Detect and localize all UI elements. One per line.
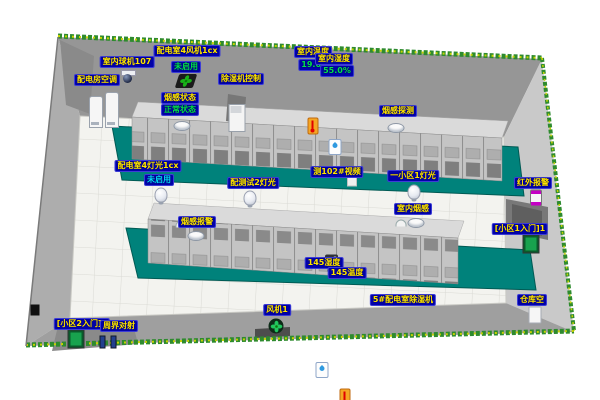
label-video102[interactable]: 测102#视频 xyxy=(310,166,363,178)
ac-unit-icon xyxy=(105,92,119,128)
thermometer-icon[interactable] xyxy=(340,389,351,400)
light-bulb-icon[interactable] xyxy=(155,188,168,203)
smoke-detector-icon[interactable] xyxy=(388,123,405,133)
smoke-sensor-ring-icon[interactable] xyxy=(408,218,425,228)
warehouse-box-icon[interactable] xyxy=(529,307,542,324)
perimeter-beam-icon[interactable] xyxy=(100,336,117,349)
thermometer-icon[interactable] xyxy=(308,118,319,135)
fan-blades-icon xyxy=(270,320,282,332)
ac-unit-icon xyxy=(89,96,103,128)
label-fan-status[interactable]: 未启用 xyxy=(171,61,201,73)
label-area1-light[interactable]: 一小区1灯光 xyxy=(387,170,439,182)
fan-blades-icon xyxy=(178,75,194,87)
label-temp145[interactable]: 145温度 xyxy=(328,267,367,279)
infrared-alarm-icon[interactable] xyxy=(530,190,542,207)
camera-dome xyxy=(123,74,132,83)
wall-opening xyxy=(31,305,40,316)
label-indoor-smoke[interactable]: 室内烟感 xyxy=(394,203,432,215)
label-indoor-humidity[interactable]: 室内湿度 xyxy=(315,53,353,65)
smoke-sensor-dome-icon[interactable] xyxy=(396,220,407,227)
label-dehumid5[interactable]: 5#配电室除湿机 xyxy=(370,294,436,306)
label-smoke-status[interactable]: 烟感状态 xyxy=(161,92,199,104)
light-bulb-icon[interactable] xyxy=(244,191,257,206)
label-light4-status[interactable]: 未启用 xyxy=(144,174,174,186)
label-fan1[interactable]: 风机1 xyxy=(263,304,291,316)
label-dehumid-control[interactable]: 除湿机控制 xyxy=(218,73,264,85)
dehumidifier-unit-icon[interactable] xyxy=(229,104,246,132)
label-test-light2[interactable]: 配测试2灯光 xyxy=(227,177,279,189)
label-warehouse[interactable]: 仓库空 xyxy=(517,294,547,306)
label-perimeter[interactable]: 周界对射 xyxy=(100,320,138,332)
label-room-ac[interactable]: 配电房空调 xyxy=(74,74,120,86)
indoor-humidity-value: 55.0% xyxy=(320,65,354,77)
label-ir-alarm[interactable]: 红外报警 xyxy=(514,177,552,189)
entry-door-icon[interactable] xyxy=(524,236,539,253)
fan-icon[interactable] xyxy=(269,319,284,334)
label-light4[interactable]: 配电室4灯光1cx xyxy=(114,160,181,172)
label-normal-status[interactable]: 正常状态 xyxy=(161,104,199,116)
humidity-sensor-icon[interactable] xyxy=(329,139,342,155)
entry-door-icon[interactable] xyxy=(69,331,84,348)
light-bulb-icon[interactable] xyxy=(408,185,421,200)
smoke-detector-icon[interactable] xyxy=(174,121,191,131)
beam-post xyxy=(111,336,117,349)
label-fan-system[interactable]: 配电室4风机1cx xyxy=(153,45,220,57)
humidity-sensor-icon[interactable] xyxy=(316,362,329,378)
power-room-3d-monitor: 配电室4风机1cx 室内球机107 未启用 除湿机控制 配电房空调 烟感状态 正… xyxy=(0,0,600,400)
ac-units-icon[interactable] xyxy=(89,92,119,128)
label-entry1[interactable]: [小区1入门]1 xyxy=(492,223,548,235)
label-camera107[interactable]: 室内球机107 xyxy=(100,56,155,68)
dome-camera-icon[interactable] xyxy=(121,70,135,84)
smoke-alarm-ring-icon[interactable] xyxy=(188,231,205,241)
beam-post xyxy=(100,336,106,349)
label-smoke-alarm[interactable]: 烟感报警 xyxy=(178,216,216,228)
label-smoke-detect[interactable]: 烟感探测 xyxy=(379,105,417,117)
